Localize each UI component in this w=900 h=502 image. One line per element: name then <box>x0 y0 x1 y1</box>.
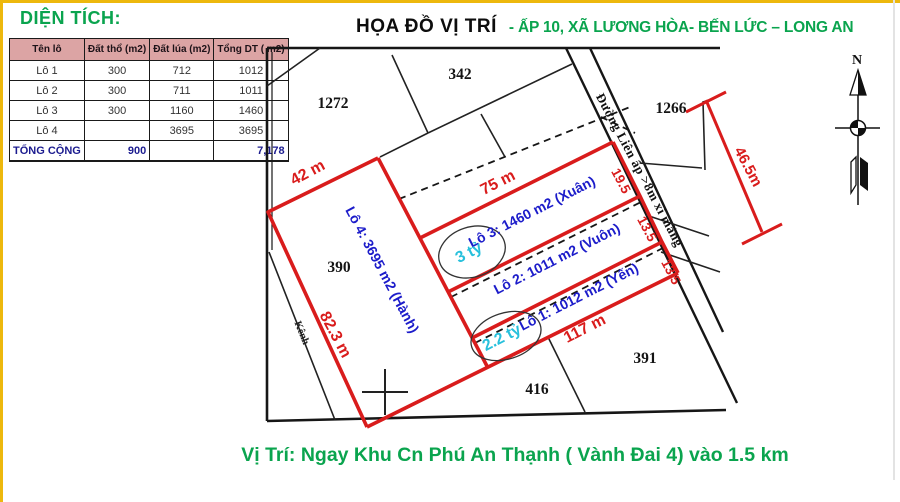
parcel-1266-label: 1266 <box>656 100 687 117</box>
parcel-342-label: 342 <box>448 66 472 83</box>
parcel-391-label: 391 <box>633 350 656 367</box>
dimension-19-5-label: 19.5 <box>608 166 634 197</box>
dimension-82-3m-label: 82.3 m <box>316 309 354 361</box>
compass-hub-quadrant <box>851 121 859 129</box>
compass-shaft <box>835 95 880 205</box>
parcel-416-label: 416 <box>525 381 549 398</box>
compass-fletching-fill <box>860 157 868 191</box>
cadastral-map: N 342 1272 1266 390 416 391 42 m 75 m 11… <box>0 0 900 502</box>
parcel-1272-label: 1272 <box>318 95 349 112</box>
canal-label: Kênh <box>292 320 311 347</box>
flyer-page: DIỆN TÍCH: Tên lô Đất thổ (m2) Đất lúa (… <box>0 0 900 502</box>
compass-north-label: N <box>852 53 862 68</box>
survey-cross-mark <box>362 369 408 415</box>
location-caption: Vị Trí: Ngay Khu Cn Phú An Thạnh ( Vành … <box>130 444 900 467</box>
dimension-117m-label: 117 m <box>561 311 608 346</box>
price-lot1-label: 2.2 tỷ <box>480 321 524 355</box>
compass-hub-quadrant <box>858 128 866 136</box>
compass-fletching-outline <box>851 157 856 193</box>
parcel-390-label: 390 <box>327 259 351 276</box>
compass: N <box>835 53 880 205</box>
